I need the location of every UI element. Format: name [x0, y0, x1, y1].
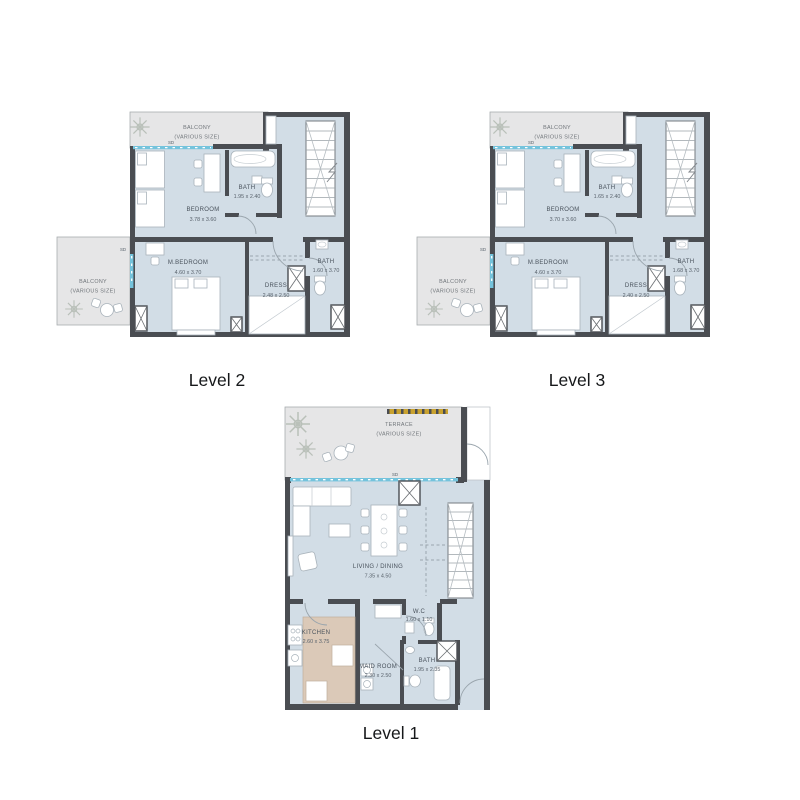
- living-dining-label: LIVING / DINING: [353, 564, 403, 570]
- kitchen-label: KITCHEN: [302, 630, 330, 636]
- master-bedroom-dim: 4.60 x 3.70: [535, 270, 562, 276]
- balcony-left-sublabel: (VARIOUS SIZE): [70, 289, 115, 295]
- floorplans-page: BALCONY (VARIOUS SIZE) SD BEDROOM 3.78 x…: [0, 0, 800, 800]
- wc-label: W.C: [413, 609, 426, 615]
- balcony-left-label: BALCONY: [79, 279, 107, 285]
- master-bedroom-label: M.BEDROOM: [528, 260, 568, 266]
- master-bedroom-dim: 4.60 x 3.70: [175, 270, 202, 276]
- sd-marker-top: SD: [528, 140, 534, 145]
- floor-plan-level1: TERRACE (VARIOUS SIZE) SD LIVING / DININ…: [285, 407, 490, 710]
- kitchen-dim: 2.60 x 3.75: [303, 639, 330, 645]
- hall-closet: [375, 605, 401, 618]
- dress-dim: 2.48 x 2.50: [263, 293, 290, 299]
- bath-upper-dim: 1.95 x 2.40: [234, 194, 261, 200]
- shaft-icon: [399, 481, 420, 505]
- dress-dim: 2.40 x 2.50: [623, 293, 650, 299]
- living-dining-dim: 7.35 x 4.50: [365, 574, 392, 580]
- balcony-top-label: BALCONY: [183, 125, 211, 131]
- bath-upper-dim: 1.65 x 2.40: [594, 194, 621, 200]
- window-sliding-door: [290, 478, 458, 481]
- bedroom-dim: 3.78 x 3.60: [190, 217, 217, 223]
- balcony-top-sublabel: (VARIOUS SIZE): [534, 135, 579, 141]
- dining-table-icon: [361, 505, 407, 556]
- balcony-top-label: BALCONY: [543, 125, 571, 131]
- level2-title: Level 2: [189, 370, 245, 391]
- dress-label: DRESS: [265, 283, 287, 289]
- sd-marker-top: SD: [168, 140, 174, 145]
- floor-plan-level3: BALCONY (VARIOUS SIZE) SD BEDROOM 3.70 x…: [417, 112, 710, 337]
- floor-plans-canvas: BALCONY (VARIOUS SIZE) SD BEDROOM 3.78 x…: [0, 0, 800, 800]
- bath-label: BATH: [419, 658, 436, 664]
- sd-marker-left: SD: [120, 247, 126, 252]
- level1-title: Level 1: [363, 723, 419, 744]
- maid-room-label: MAID ROOM: [359, 664, 397, 670]
- bath-dim: 1.95 x 2.35: [414, 667, 441, 673]
- entry-nook: [467, 407, 490, 480]
- bath-upper-label: BATH: [239, 185, 256, 191]
- terrace-sublabel: (VARIOUS SIZE): [376, 432, 421, 438]
- terrace-strip: [387, 409, 448, 414]
- maid-room-dim: 2.30 x 2.50: [365, 673, 392, 679]
- bath-lower-dim: 1.68 x 3.70: [673, 268, 700, 274]
- sd-marker: SD: [392, 472, 398, 477]
- level3-title: Level 3: [549, 370, 605, 391]
- dress-label: DRESS: [625, 283, 647, 289]
- balcony-left-label: BALCONY: [439, 279, 467, 285]
- bath-lower-dim: 1.60 x 3.70: [313, 268, 340, 274]
- balcony-left-sublabel: (VARIOUS SIZE): [430, 289, 475, 295]
- balcony-top-sublabel: (VARIOUS SIZE): [174, 135, 219, 141]
- bedroom-label: BEDROOM: [546, 207, 579, 213]
- terrace-label: TERRACE: [385, 422, 413, 428]
- bedroom-label: BEDROOM: [186, 207, 219, 213]
- bath-lower-label: BATH: [678, 259, 695, 265]
- sd-marker-left: SD: [480, 247, 486, 252]
- bedroom-dim: 3.70 x 3.60: [550, 217, 577, 223]
- bath-lower-label: BATH: [318, 259, 335, 265]
- floor-plan-level2: BALCONY (VARIOUS SIZE) SD BEDROOM 3.78 x…: [57, 112, 350, 337]
- bath-upper-label: BATH: [599, 185, 616, 191]
- stairs-icon: [448, 503, 473, 598]
- master-bedroom-label: M.BEDROOM: [168, 260, 208, 266]
- wc-dim: 1.60 x 1.10: [406, 617, 433, 623]
